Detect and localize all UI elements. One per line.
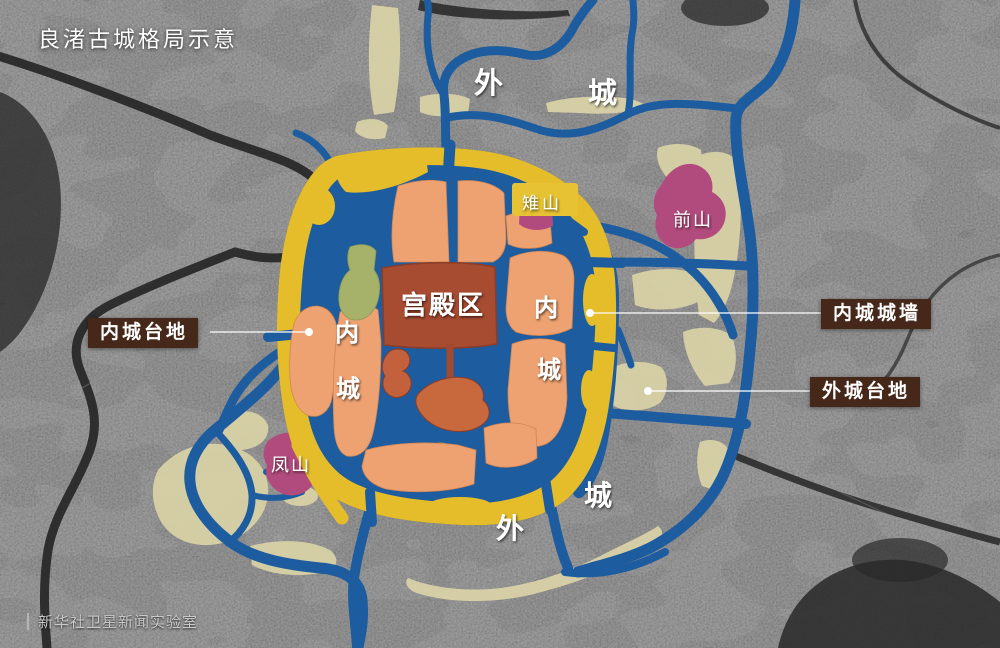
outer-platform-north-strip	[369, 5, 400, 115]
label-outer-city-top-char2: 城	[588, 76, 617, 110]
water-gate-south-2	[545, 478, 550, 510]
leader-dot-outer-platform	[644, 387, 652, 395]
inner-platform-north-left	[392, 180, 449, 262]
water-gate-south-1	[370, 492, 372, 522]
page-title: 良渚古城格局示意	[38, 22, 238, 54]
channel-east-horizontal-1	[610, 262, 748, 266]
label-inner-city-left-char1: 内	[335, 318, 359, 347]
wall-bump-west	[303, 187, 335, 225]
label-outer-city-bottom-char1: 外	[496, 512, 524, 545]
label-inner-city-right-char2: 城	[537, 355, 561, 384]
label-outer-city-top-char1: 外	[474, 66, 503, 100]
callout-outer-city-platform: 外城台地	[810, 377, 920, 407]
palace-mound-west	[382, 349, 411, 397]
label-inner-city-right-char1: 内	[534, 293, 558, 322]
inner-platform-south-band	[362, 443, 476, 492]
credit-line: 新华社卫星新闻实验室	[27, 611, 198, 632]
label-fengshan: 凤山	[271, 455, 311, 476]
outer-platform-qianshan-bottom	[632, 269, 700, 310]
inner-platform-west-target	[290, 306, 338, 416]
credit-text: 新华社卫星新闻实验室	[38, 611, 198, 632]
callout-inner-city-wall-label: 内城城墙	[833, 302, 921, 324]
water-gate-north	[447, 145, 450, 195]
hill-patch	[852, 538, 948, 582]
leader-dot-inner-wall	[586, 309, 594, 317]
inner-platform-southeast	[484, 423, 537, 467]
credit-divider	[27, 613, 29, 630]
wall-bump-east-2	[581, 370, 597, 410]
label-zhishan: 雉山	[522, 194, 562, 214]
water-gate-east-1	[588, 262, 622, 263]
water-gate-east-2	[583, 345, 614, 348]
leader-dot-inner-platform	[305, 328, 313, 336]
liangzhu-map-infographic: 外 城 宫殿区 内 城 内 城 城 外 雉山 前山 凤山 良渚古城格局示意 内城…	[0, 0, 1000, 648]
label-inner-city-left-char2: 城	[336, 374, 360, 403]
wall-bump-south	[428, 497, 492, 515]
label-outer-city-bottom-char2: 城	[584, 479, 612, 512]
inner-platform-north-right	[458, 181, 506, 262]
label-palace: 宫殿区	[401, 290, 485, 321]
callout-outer-city-platform-label: 外城台地	[822, 380, 910, 402]
label-qianshan: 前山	[673, 210, 713, 231]
wall-bump-east-1	[583, 274, 601, 326]
callout-inner-city-wall: 内城城墙	[821, 299, 931, 329]
callout-inner-city-platform-label: 内城台地	[100, 321, 188, 343]
callout-inner-city-platform: 内城台地	[88, 318, 198, 348]
